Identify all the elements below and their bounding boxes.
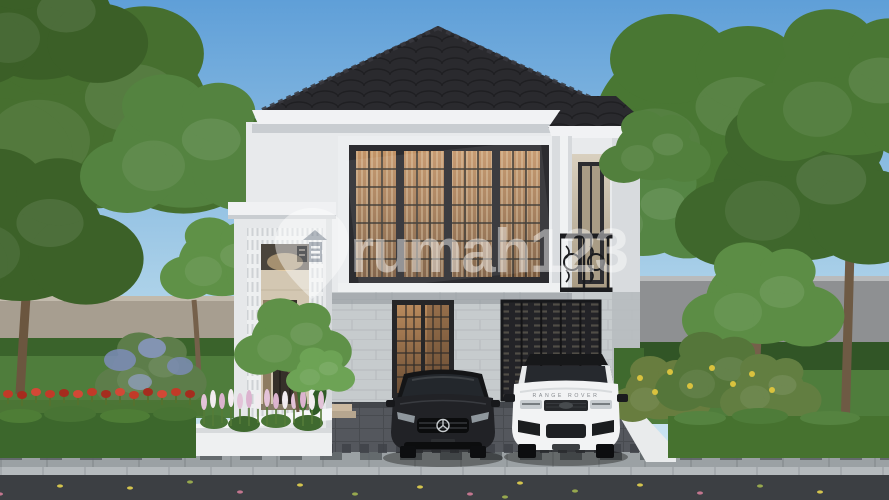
- car-suv-white: RANGE ROVER: [504, 354, 628, 466]
- entry-steps: [328, 404, 356, 418]
- suv-lower-grille: [546, 424, 586, 438]
- suv-mirror-right: [617, 394, 628, 402]
- road: [0, 475, 889, 500]
- suv-badge: [559, 402, 573, 409]
- sedan-tire-left: [400, 446, 416, 458]
- sedan-mirror-left: [386, 400, 395, 407]
- watermark-text: rumah123: [350, 217, 627, 286]
- suv-tire-left: [518, 444, 536, 458]
- suv-mirror-left: [504, 394, 515, 402]
- range-rover-hood-text: RANGE ROVER: [533, 393, 600, 399]
- sedan-mirror-right: [491, 400, 500, 407]
- front-hedge-left: [0, 406, 197, 458]
- suv-roof: [524, 354, 608, 365]
- render-canvas: RANGE ROVER: [0, 0, 889, 500]
- suv-tire-right: [596, 444, 614, 458]
- sedan-tire-right: [470, 446, 486, 458]
- suv-skid-plate: [552, 444, 580, 450]
